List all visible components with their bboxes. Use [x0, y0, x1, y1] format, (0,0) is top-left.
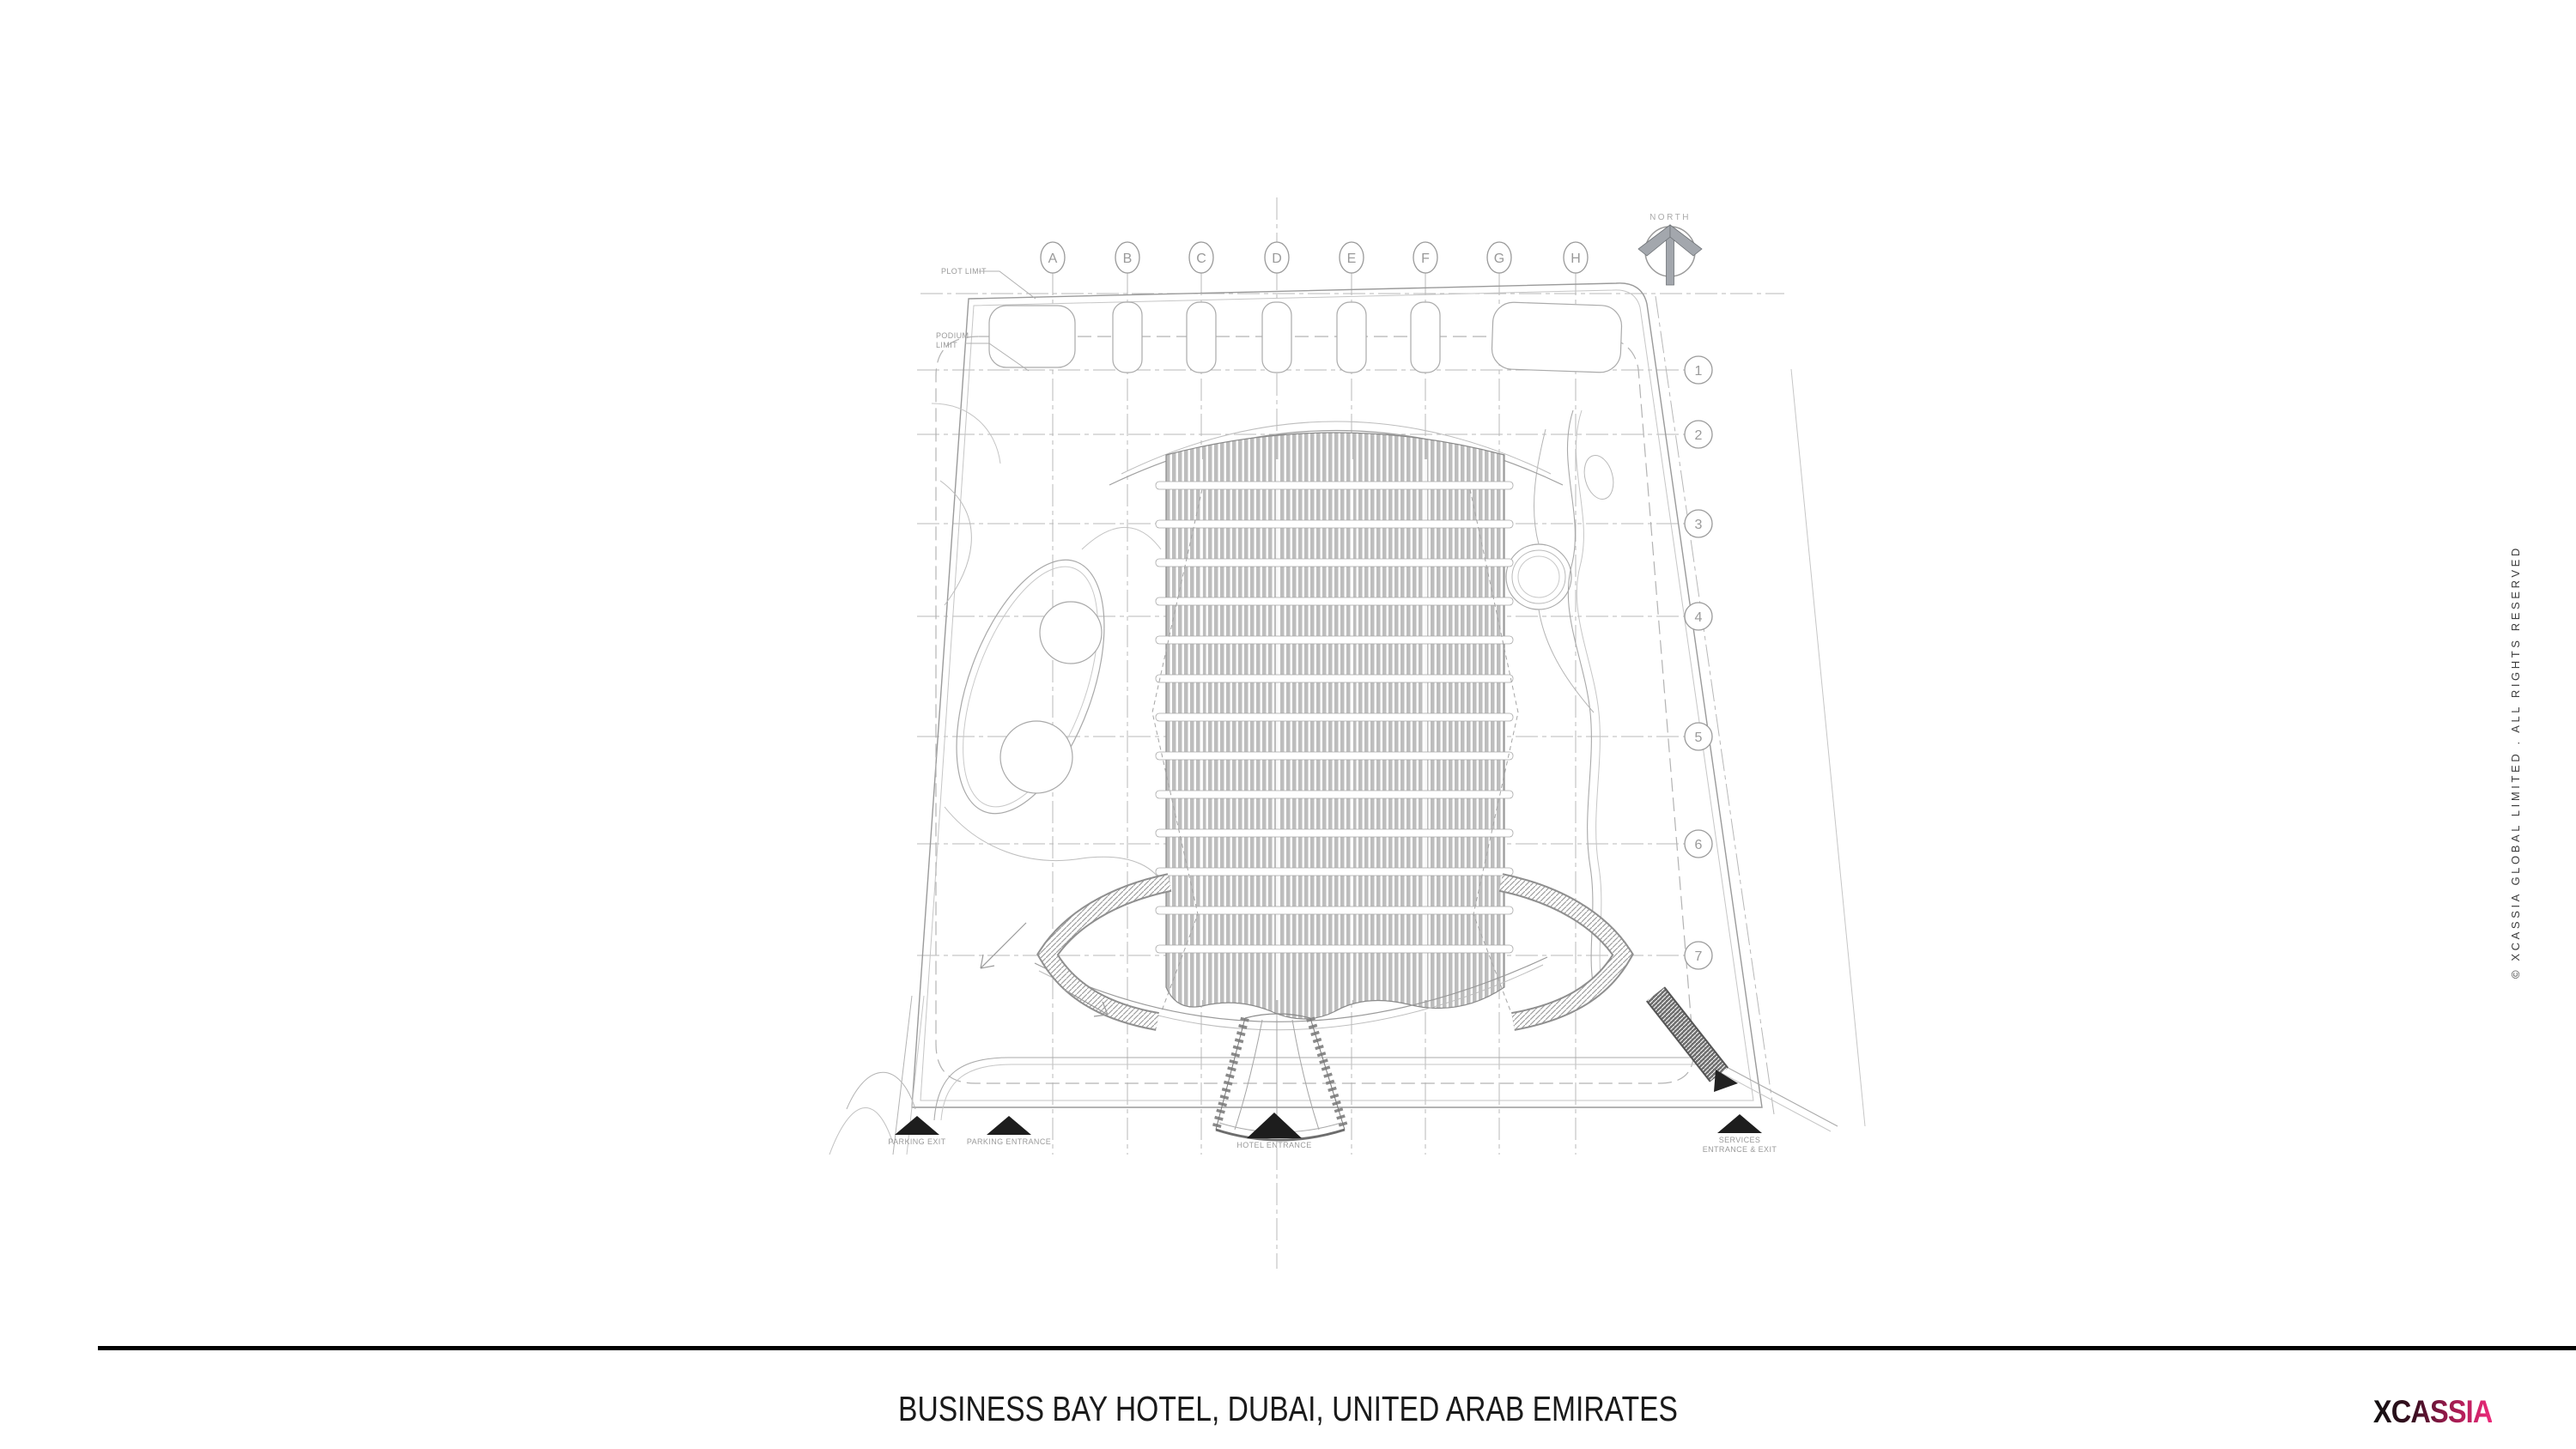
services-ramp-arrow — [1714, 1070, 1738, 1092]
parking-entrance-label: PARKING ENTRANCE — [967, 1137, 1051, 1146]
grid-row-label: 7 — [1695, 949, 1703, 964]
services-label-line1: SERVICES — [1719, 1136, 1761, 1144]
services-label-line2: ENTRANCE & EXIT — [1703, 1145, 1777, 1154]
parking-exit-triangle — [895, 1116, 939, 1135]
north-arrow: NORTH — [1638, 213, 1702, 285]
grid-column-label: H — [1571, 252, 1581, 266]
hotel-entrance-label: HOTEL ENTRANCE — [1236, 1141, 1311, 1149]
grid-column-label: F — [1421, 252, 1430, 266]
hotel-tower — [1109, 421, 1563, 1019]
parking-exit-label: PARKING EXIT — [888, 1137, 945, 1146]
north-label: NORTH — [1649, 213, 1691, 222]
grid-row-label: 3 — [1695, 518, 1703, 532]
podium-limit-label-line2: LIMIT — [936, 341, 957, 349]
top-planters — [989, 301, 1622, 373]
services-triangle — [1717, 1114, 1762, 1133]
grid-column-label: D — [1272, 252, 1282, 266]
title-rule — [98, 1346, 2576, 1350]
copyright-text: © XCASSIA GLOBAL LIMITED . ALL RIGHTS RE… — [2509, 481, 2522, 979]
grid-column-label: A — [1048, 252, 1058, 266]
grid-row-label: 4 — [1695, 610, 1703, 625]
services-ramp — [1656, 994, 1738, 1092]
site-plan-drawing: PARKING EXIT PARKING ENTRANCE HOTEL ENTR… — [0, 0, 2576, 1449]
grid-column-label: C — [1196, 252, 1206, 266]
sheet-title: BUSINESS BAY HOTEL, DUBAI, UNITED ARAB E… — [232, 1389, 2344, 1429]
parking-entrance-triangle — [987, 1116, 1031, 1135]
grid-column-bubbles: A B C D E F G H — [1041, 242, 1588, 273]
roundabout — [1506, 544, 1571, 609]
brand-logo: XCASSIA — [2372, 1394, 2492, 1430]
grid-row-label: 1 — [1695, 364, 1703, 379]
grid-row-label: 6 — [1695, 838, 1703, 852]
garden-pond-circle — [1040, 602, 1102, 664]
grid-row-label: 2 — [1695, 428, 1703, 443]
grid-row-label: 5 — [1695, 731, 1703, 745]
grid-column-label: E — [1347, 252, 1357, 266]
hotel-entrance-triangle — [1247, 1113, 1302, 1138]
garden-pond-circle — [1000, 721, 1072, 793]
podium-limit-label-line1: PODIUM — [936, 331, 969, 340]
grid-column-label: B — [1123, 252, 1133, 266]
grid-column-label: G — [1494, 252, 1504, 266]
drawing-sheet: PARKING EXIT PARKING ENTRANCE HOTEL ENTR… — [0, 0, 2576, 1449]
